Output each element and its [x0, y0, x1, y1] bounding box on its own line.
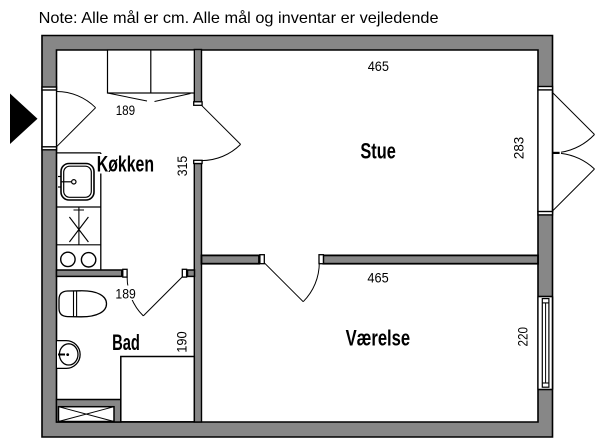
svg-text:189: 189: [115, 286, 135, 301]
svg-text:465: 465: [368, 59, 389, 74]
svg-text:Note: Alle mål er cm. Alle mål: Note: Alle mål er cm. Alle mål og invent…: [39, 9, 439, 27]
svg-text:283: 283: [511, 137, 526, 159]
svg-text:Stue: Stue: [360, 138, 395, 163]
svg-text:189: 189: [116, 103, 136, 118]
svg-text:Køkken: Køkken: [97, 152, 154, 177]
svg-text:190: 190: [174, 331, 189, 352]
svg-text:Bad: Bad: [112, 330, 140, 355]
svg-text:220: 220: [516, 327, 531, 347]
svg-text:465: 465: [367, 270, 388, 285]
svg-text:315: 315: [175, 156, 190, 176]
svg-text:Værelse: Værelse: [346, 326, 411, 351]
